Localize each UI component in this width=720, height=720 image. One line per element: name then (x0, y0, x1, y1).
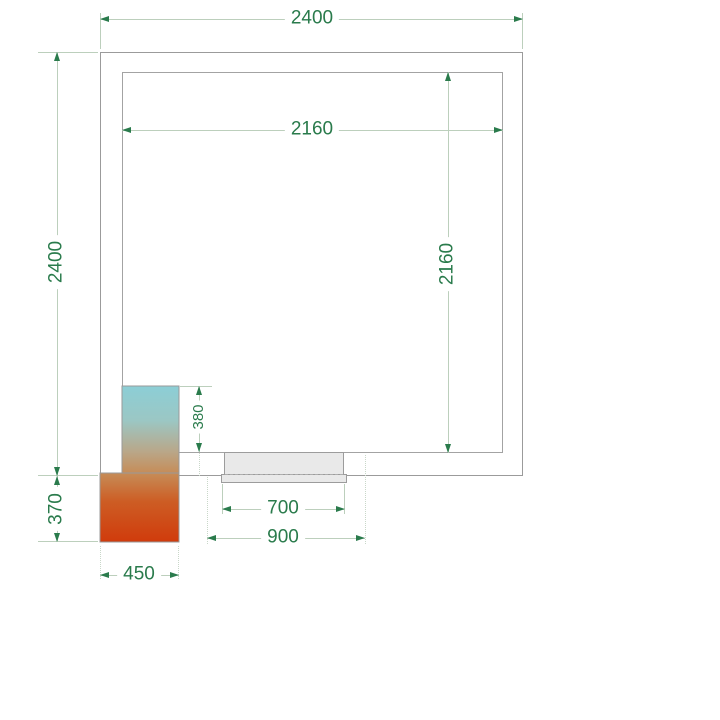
dim-unit-outside-arrow-bottom (54, 533, 60, 542)
dim-door-clear-arrow-left (222, 506, 231, 512)
floor-plan-drawing: 2400 2400 2160 2160 380 370 700 900 450 (0, 0, 720, 720)
dim-outer-width-label: 2400 (285, 9, 339, 30)
dim-inner-width-arrow-right (494, 127, 503, 133)
dim-outer-depth-arrow-top (54, 52, 60, 61)
dim-unit-inside-ext-dotted (199, 453, 200, 476)
dim-unit-inside-label: 380 (191, 400, 208, 433)
dim-inner-depth-label: 2160 (438, 237, 459, 291)
door-frame-lip (221, 474, 347, 483)
dim-outer-depth-ext-bottom (38, 475, 98, 476)
dim-door-clear-label: 700 (261, 499, 305, 520)
cooling-unit-outdoor-section (100, 473, 179, 542)
dim-outer-depth-label: 2400 (47, 235, 68, 289)
dim-unit-width-label: 450 (117, 565, 161, 586)
dim-door-frame-arrow-left (207, 535, 216, 541)
dim-door-frame-arrow-right (356, 535, 365, 541)
dim-outer-width-arrow-left (100, 16, 109, 22)
dim-door-frame-ext-right (365, 455, 366, 544)
dim-door-clear-arrow-right (336, 506, 345, 512)
dim-unit-outside-arrow-top (54, 476, 60, 485)
door-threshold-dashed-line (225, 474, 343, 475)
dim-unit-outside-ext-bottom (38, 541, 98, 542)
dim-outer-depth-ext-top (38, 52, 98, 53)
dim-inner-width-label: 2160 (285, 120, 339, 141)
dim-unit-inside-arrow-top (196, 386, 202, 395)
dim-unit-outside-label: 370 (47, 487, 68, 531)
dim-inner-depth-arrow-bottom (445, 444, 451, 453)
dim-unit-width-arrow-right (170, 572, 179, 578)
cooling-unit-indoor-section (122, 386, 179, 474)
dim-door-frame-label: 900 (261, 528, 305, 549)
dim-outer-depth-arrow-bottom (54, 467, 60, 476)
cooling-unit (99, 385, 180, 544)
dim-outer-width-arrow-right (514, 16, 523, 22)
door-leaf (224, 452, 344, 475)
dim-unit-inside-arrow-bottom (196, 443, 202, 452)
dim-inner-depth-arrow-top (445, 72, 451, 81)
dim-unit-width-arrow-left (100, 572, 109, 578)
dim-inner-width-arrow-left (122, 127, 131, 133)
